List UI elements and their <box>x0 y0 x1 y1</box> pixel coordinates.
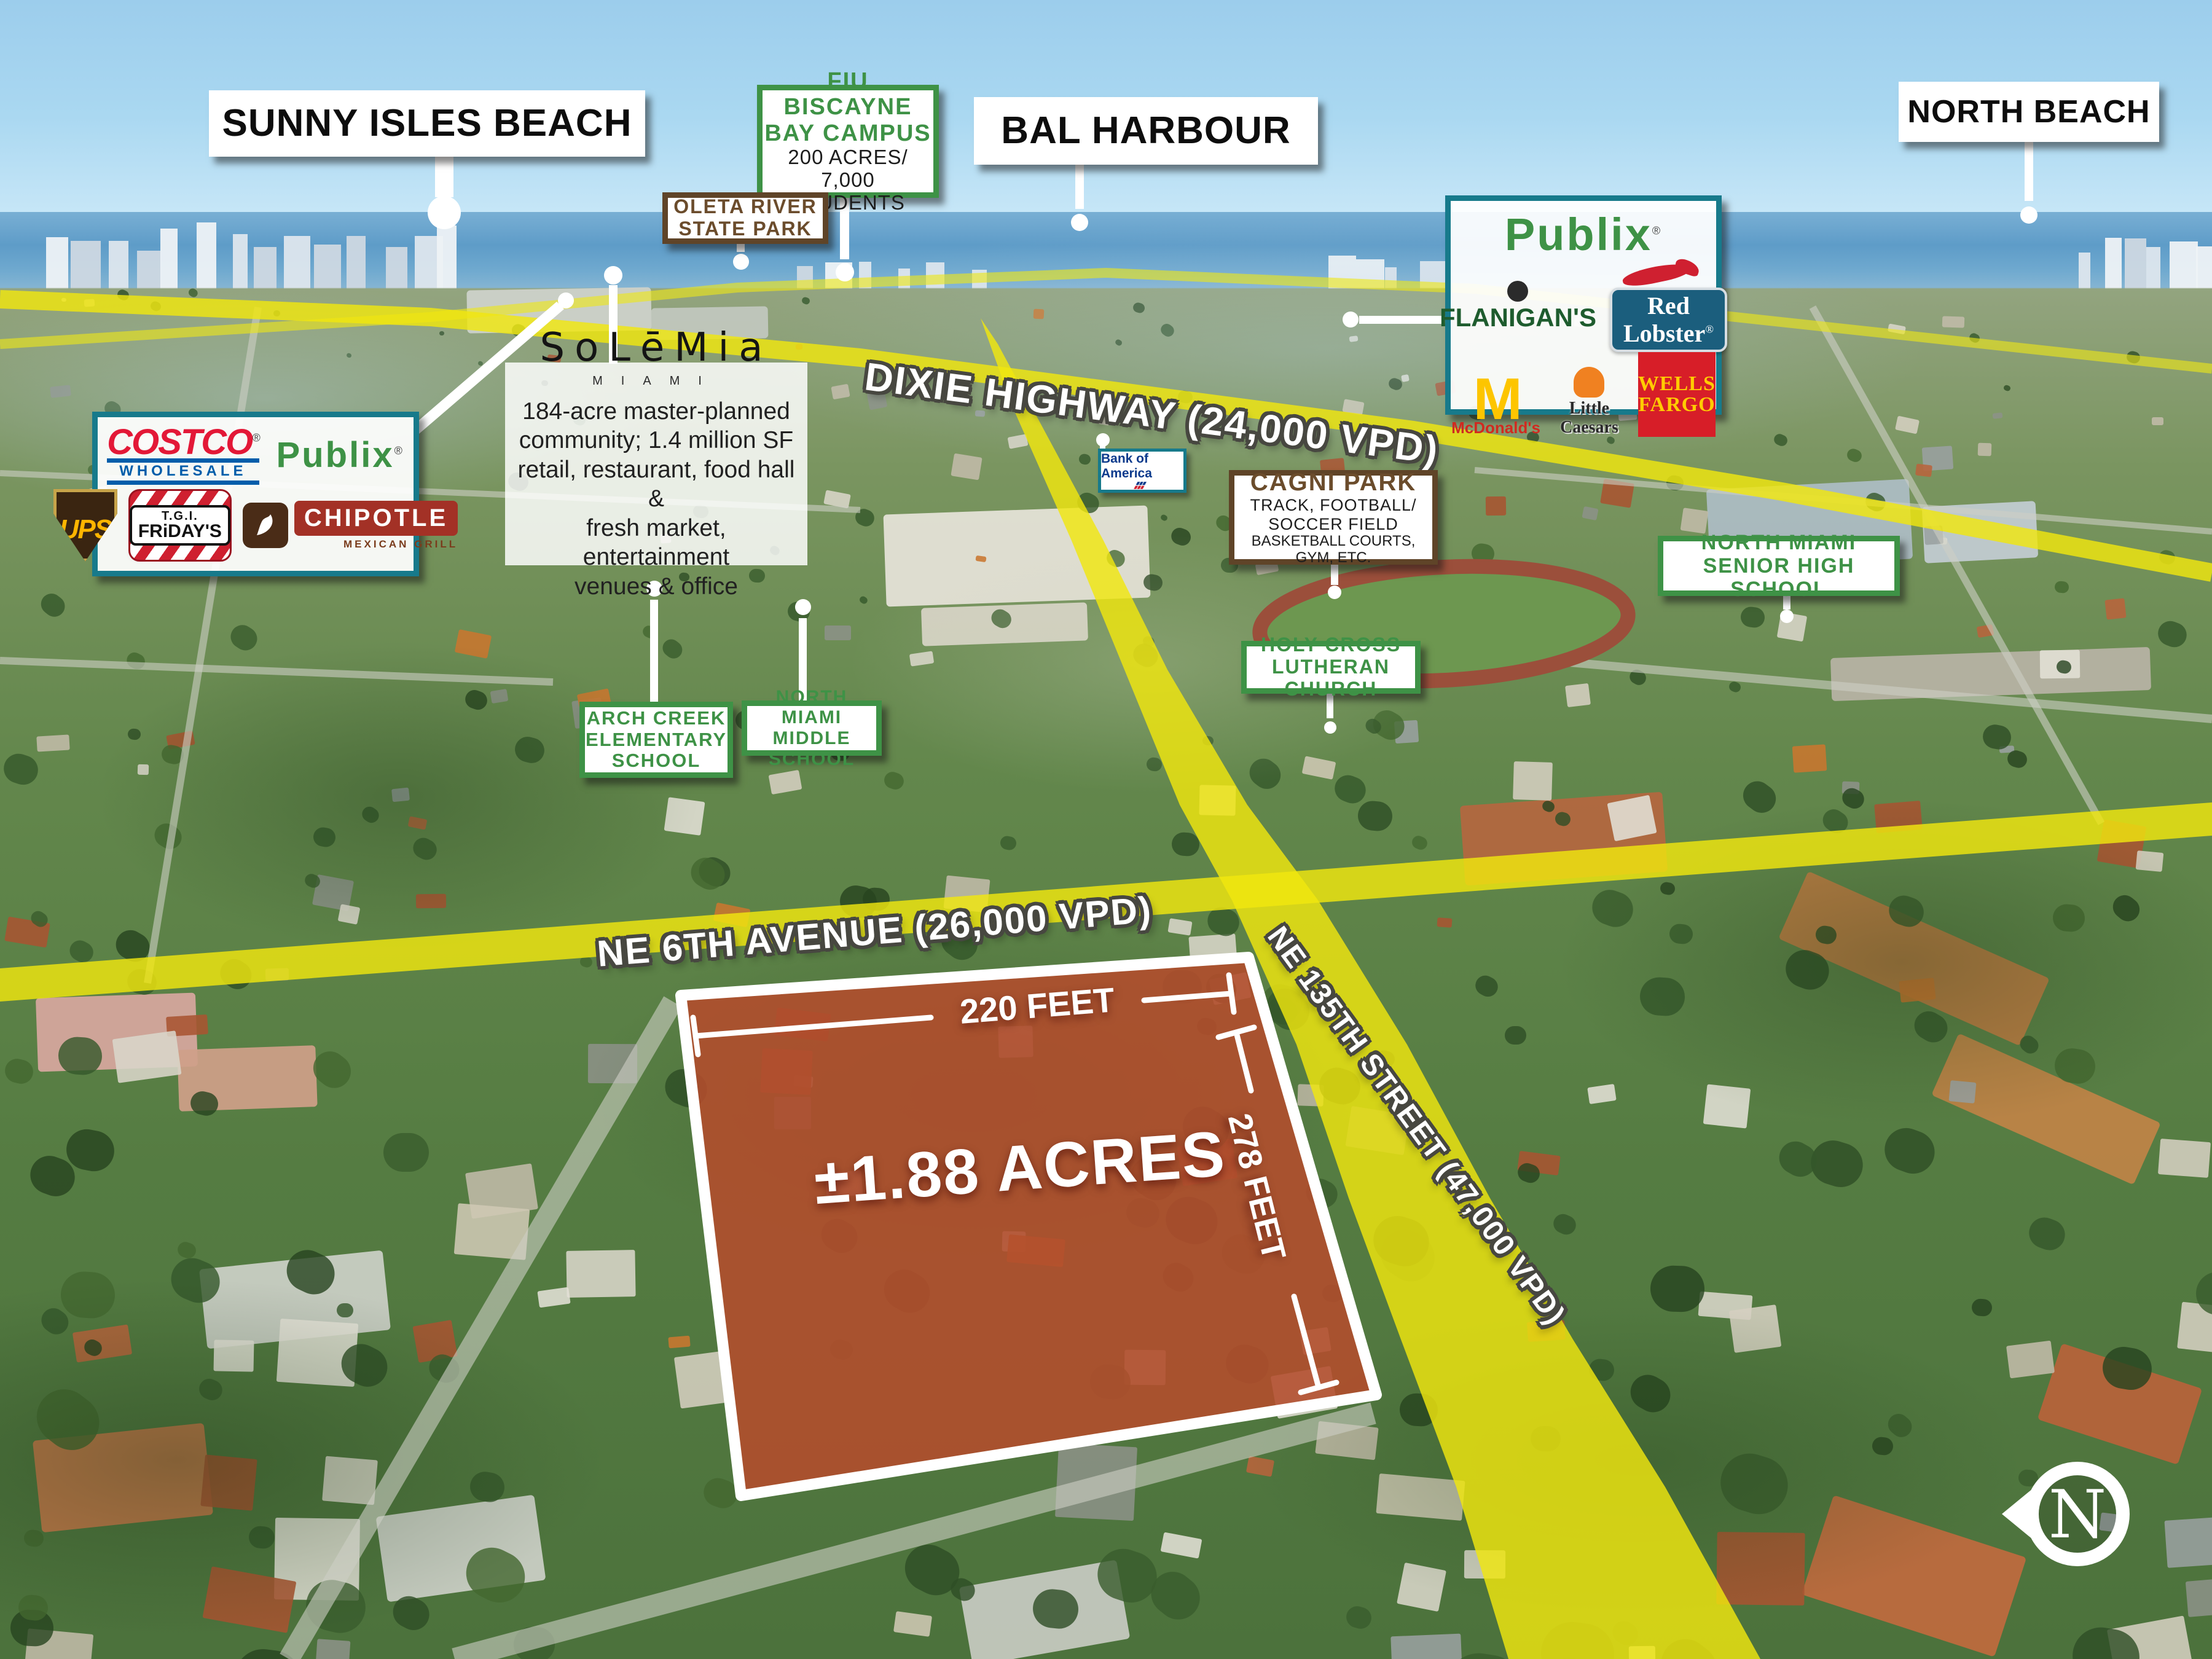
label-sunny-isles-beach: SUNNY ISLES BEACH <box>209 90 645 157</box>
registered-icon: ® <box>1705 323 1714 335</box>
compass-n-label: N <box>2049 1477 2107 1553</box>
costco-plaza-brand-box: COSTCO® WHOLESALE Publix® UPS T.G.I. FRi… <box>92 412 419 576</box>
pin-sunny-isles <box>428 196 461 229</box>
brand-row-2: FLANIGAN'S Red Lobster® <box>1440 261 1727 353</box>
cagni-line3: BASKETBALL COURTS, GYM, ETC. <box>1238 533 1429 567</box>
flanigans-logo: FLANIGAN'S <box>1440 281 1596 332</box>
ups-text: UPS <box>60 514 111 544</box>
little-caesars-logo: Little Caesars <box>1556 367 1622 437</box>
pin-costco-plaza <box>558 292 574 308</box>
mcdonalds-logo: M McDonald's <box>1451 376 1540 437</box>
pin-publix-plaza-line <box>1359 316 1446 324</box>
label-holy-cross-lutheran-church: HOLY CROSS LUTHERAN CHURCH <box>1241 641 1421 694</box>
pin-senior-high <box>1780 610 1794 623</box>
label-text: NORTH BEACH <box>1907 94 2150 130</box>
publix-logo: Publix® <box>276 436 404 476</box>
solemia-desc-line: fresh market, entertainment <box>511 514 801 572</box>
pin-solemia <box>604 266 622 284</box>
wells-fargo-line1: WELLS <box>1638 374 1716 395</box>
label-north-miami-middle-school: NORTH MIAMI MIDDLE SCHOOL <box>742 700 882 756</box>
pin-bal-harbour <box>1071 214 1088 231</box>
fiu-line1: FIU BISCAYNE <box>763 68 933 120</box>
chipotle-pepper-icon <box>243 503 288 548</box>
fiu-line3: 200 ACRES/ <box>788 146 908 169</box>
bank-of-america-label: Bank of America <box>1098 449 1186 493</box>
chipotle-sub-text: MEXICAN GRILL <box>294 538 458 550</box>
mcdonalds-text: McDonald's <box>1451 419 1540 437</box>
solemia-brand: SoLēMia <box>539 326 772 371</box>
flanigans-text: FLANIGAN'S <box>1440 303 1596 332</box>
label-text: SUNNY ISLES BEACH <box>222 102 632 144</box>
pin-sunny-isles-line <box>435 155 453 197</box>
cagni-title: CAGNI PARK <box>1250 469 1416 496</box>
pin-oleta-line <box>737 243 745 252</box>
costco-text: COSTCO <box>107 422 252 462</box>
pin-fiu <box>836 263 854 281</box>
bank-of-america-flag-icon <box>1126 481 1158 490</box>
red-lobster-text: Red Lobster <box>1623 292 1705 347</box>
wells-fargo-line2: FARGO <box>1638 394 1715 416</box>
registered-icon: ® <box>394 445 404 457</box>
brand-row-1: COSTCO® WHOLESALE Publix® <box>107 426 404 485</box>
fiu-line2: BAY CAMPUS <box>764 120 931 147</box>
holy-cross-line2: LUTHERAN CHURCH <box>1247 656 1415 700</box>
solemia-desc-line: venues & office <box>511 572 801 602</box>
cagni-line2: SOCCER FIELD <box>1268 515 1398 533</box>
publix-logo: Publix® <box>1505 210 1662 261</box>
arch-creek-line1: ARCH CREEK <box>587 708 726 729</box>
pin-cagni <box>1328 586 1341 599</box>
pin-cagni-line <box>1331 565 1338 585</box>
label-oleta-river-state-park: OLETA RIVER STATE PARK <box>662 192 828 244</box>
lobster-icon <box>1610 261 1702 288</box>
pin-publix-plaza <box>1343 312 1359 327</box>
compass-north-pointer <box>2002 1486 2036 1542</box>
publix-logo-text: Publix <box>1505 209 1652 260</box>
solemia-miami: MIAMI <box>592 374 720 388</box>
label-fiu-biscayne-bay-campus: FIU BISCAYNE BAY CAMPUS 200 ACRES/ 7,000… <box>757 85 939 198</box>
senior-high-line1: NORTH MIAMI <box>1701 531 1856 554</box>
pin-holy-cross <box>1324 721 1336 734</box>
middle-school-line2: MIDDLE SCHOOL <box>747 728 876 769</box>
solemia-desc-line: 184-acre master-planned <box>511 397 801 426</box>
costco-logo: COSTCO® WHOLESALE <box>107 426 259 485</box>
pin-middle-school <box>795 599 811 615</box>
bank-of-america-text: Bank of America <box>1101 452 1183 481</box>
little-caesars-text: Little Caesars <box>1556 399 1622 437</box>
pin-oleta <box>733 254 749 270</box>
middle-school-line1: NORTH MIAMI <box>747 687 876 728</box>
label-bal-harbour: BAL HARBOUR <box>974 97 1318 165</box>
solemia-desc-line: community; 1.4 million SF <box>511 426 801 455</box>
ups-logo: UPS <box>53 489 117 562</box>
oleta-line2: STATE PARK <box>678 218 812 240</box>
costco-wholesale-text: WHOLESALE <box>107 458 259 485</box>
flanigans-face-icon <box>1507 281 1528 302</box>
brand-row-2: UPS T.G.I. FRiDAY'S CHIPOTLE MEXICAN GRI… <box>53 489 458 562</box>
label-text: BAL HARBOUR <box>1001 109 1290 152</box>
registered-icon: ® <box>1652 224 1662 237</box>
oleta-line1: OLETA RIVER <box>673 196 817 218</box>
arch-creek-line2: ELEMENTARY <box>586 729 727 751</box>
label-north-beach: NORTH BEACH <box>1899 82 2159 142</box>
pin-north-beach <box>2020 206 2037 224</box>
fridays-text: FRiDAY'S <box>138 522 222 541</box>
label-north-miami-senior-high: NORTH MIAMI SENIOR HIGH SCHOOL <box>1658 536 1900 596</box>
publix-logo-text: Publix <box>276 435 394 475</box>
solemia-description: 184-acre master-planned community; 1.4 m… <box>511 397 801 602</box>
cagni-line1: TRACK, FOOTBALL/ <box>1250 496 1416 514</box>
publix-plaza-brand-box: Publix® FLANIGAN'S Red Lobster® M McDona… <box>1445 195 1722 415</box>
brand-row-3: M McDonald's Little Caesars WELLS FARGO <box>1451 352 1716 437</box>
holy-cross-line1: HOLY CROSS <box>1261 634 1401 656</box>
red-lobster-logo: Red Lobster® <box>1610 261 1727 353</box>
pin-arch-creek-line <box>650 600 658 702</box>
chipotle-text: CHIPOTLE <box>294 501 458 536</box>
tgi-fridays-logo: T.G.I. FRiDAY'S <box>128 489 232 562</box>
arch-creek-line3: SCHOOL <box>612 750 701 772</box>
map-overlay: N <box>0 0 2212 1659</box>
aerial-site-map: N DIXIE HIGHWAY (24,000 VPD) NE 6TH AVEN… <box>0 0 2212 1659</box>
label-cagni-park: CAGNI PARK TRACK, FOOTBALL/ SOCCER FIELD… <box>1229 470 1438 565</box>
chipotle-logo: CHIPOTLE MEXICAN GRILL <box>243 501 458 550</box>
caesars-figure-icon <box>1574 367 1604 398</box>
tgi-text: T.G.I. <box>138 510 222 522</box>
solemia-desc-line: retail, restaurant, food hall & <box>511 455 801 514</box>
solemia-description-box: SoLēMia MIAMI 184-acre master-planned co… <box>505 363 807 565</box>
wells-fargo-logo: WELLS FARGO <box>1638 352 1716 437</box>
label-arch-creek-elementary: ARCH CREEK ELEMENTARY SCHOOL <box>579 702 733 778</box>
pin-north-beach-line <box>2025 142 2033 201</box>
compass-rose: N <box>2002 1469 2123 1559</box>
pin-bal-harbour-line <box>1075 165 1084 209</box>
golden-arches-icon: M <box>1451 376 1540 423</box>
senior-high-line2: SENIOR HIGH SCHOOL <box>1663 554 1894 601</box>
registered-icon: ® <box>252 432 259 444</box>
